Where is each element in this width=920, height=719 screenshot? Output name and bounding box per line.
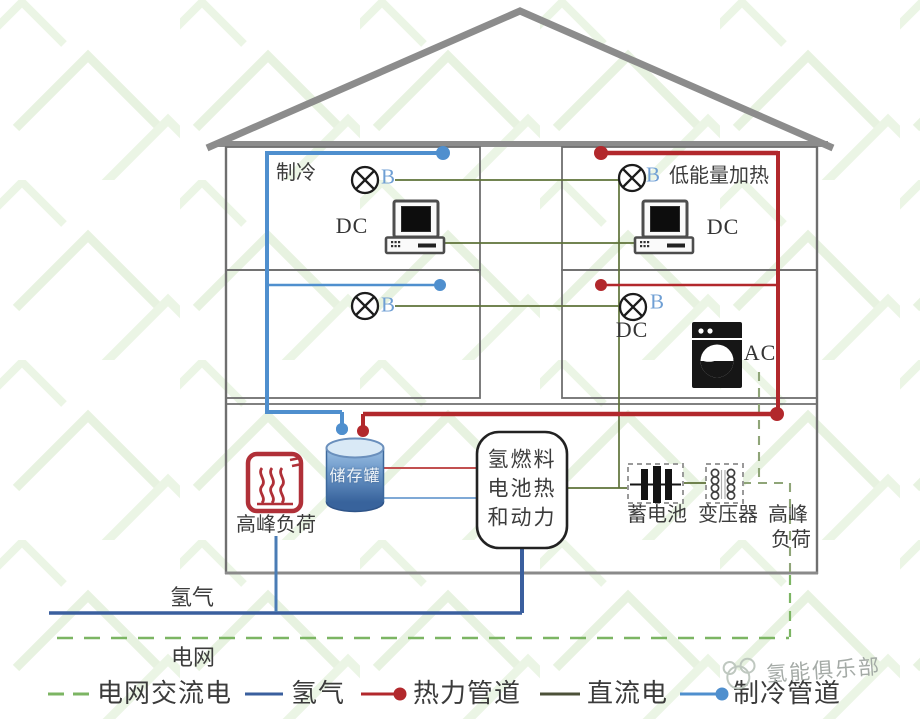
- peak-load-right-label-line1: 高峰: [768, 505, 808, 525]
- hydrogen-pipe-label: 氢气: [170, 587, 214, 609]
- diagram-labels: 制冷 低能量加热 B B B B DC DC DC AC 储存罐 氢燃料 电池热…: [0, 0, 920, 719]
- lamp-b-label: B: [381, 295, 395, 316]
- battery-label: 蓄电池: [627, 505, 687, 525]
- fuel-cell-label-line3: 和动力: [488, 508, 557, 529]
- lamp-b-label: B: [650, 292, 664, 313]
- peak-load-label: 高峰负荷: [236, 515, 316, 535]
- ac-label: AC: [744, 342, 777, 364]
- legend-label-hydrogen: 氢气: [291, 681, 345, 707]
- grid-pipe-label: 电网: [171, 647, 215, 669]
- legend-label-dc: 直流电: [587, 681, 668, 707]
- watermark-text: 氢能俱乐部: [765, 651, 882, 689]
- legend-label-grid-ac: 电网交流电: [97, 681, 232, 707]
- fuel-cell-label-line1: 氢燃料: [488, 450, 557, 471]
- transformer-label: 变压器: [698, 505, 758, 525]
- legend-label-heat: 热力管道: [413, 681, 521, 707]
- lamp-b-label: B: [381, 167, 395, 188]
- fuel-cell-label-line2: 电池热: [488, 479, 557, 500]
- dc-label: DC: [336, 215, 369, 237]
- watermark-logo: [715, 654, 764, 697]
- heating-room-label: 低能量加热: [669, 166, 769, 186]
- storage-tank-label: 储存罐: [329, 469, 380, 485]
- peak-load-right-label-line2: 负荷: [771, 530, 811, 550]
- hydrogen-house-diagram: 制冷 低能量加热 B B B B DC DC DC AC 储存罐 氢燃料 电池热…: [0, 0, 920, 719]
- lamp-b-label: B: [646, 165, 660, 186]
- cooling-room-label: 制冷: [276, 163, 316, 183]
- dc-label: DC: [707, 216, 740, 238]
- dc-label: DC: [616, 319, 649, 341]
